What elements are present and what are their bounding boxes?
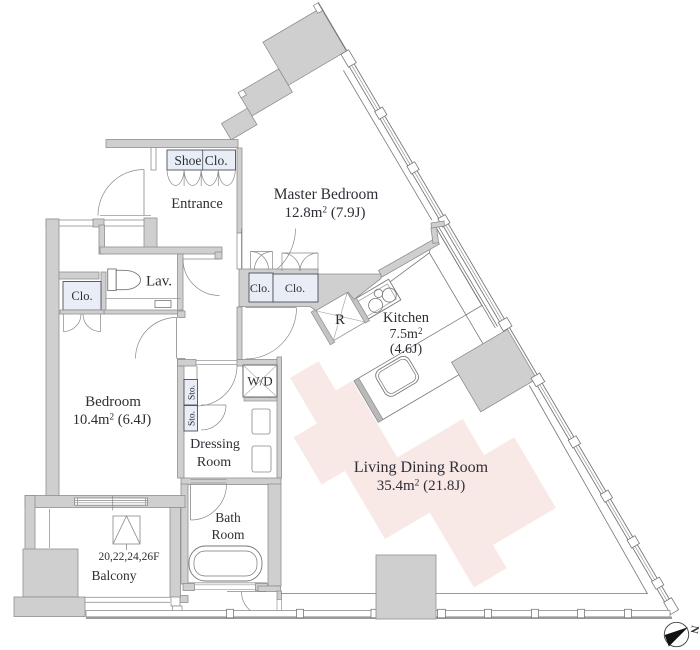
svg-text:7.5m2: 7.5m2 <box>390 326 423 342</box>
svg-text:Lav.: Lav. <box>146 274 172 290</box>
svg-text:R: R <box>335 312 345 328</box>
svg-text:Kitchen: Kitchen <box>383 310 430 326</box>
svg-text:Room: Room <box>197 455 231 470</box>
svg-text:Sto.: Sto. <box>188 385 198 400</box>
svg-text:Dressing: Dressing <box>190 437 240 452</box>
svg-text:35.4m2 (21.8J): 35.4m2 (21.8J) <box>377 478 466 494</box>
svg-text:Clo.: Clo. <box>285 281 305 295</box>
svg-text:Entrance: Entrance <box>171 196 223 212</box>
svg-text:(4.6J): (4.6J) <box>390 342 423 357</box>
svg-text:Bath: Bath <box>215 510 241 525</box>
svg-text:Shoe Clo.: Shoe Clo. <box>174 153 227 168</box>
svg-text:Clo.: Clo. <box>71 289 92 303</box>
svg-text:Room: Room <box>211 527 245 542</box>
svg-text:Clo.: Clo. <box>250 281 270 295</box>
svg-text:Balcony: Balcony <box>92 568 137 583</box>
svg-text:Master Bedroom: Master Bedroom <box>274 186 379 203</box>
svg-text:W/D: W/D <box>247 374 272 389</box>
svg-text:Bedroom: Bedroom <box>85 394 141 410</box>
svg-text:Living Dining Room: Living Dining Room <box>354 459 489 476</box>
svg-text:Sto.: Sto. <box>188 411 198 426</box>
svg-text:20,22,24,26F: 20,22,24,26F <box>98 551 159 563</box>
